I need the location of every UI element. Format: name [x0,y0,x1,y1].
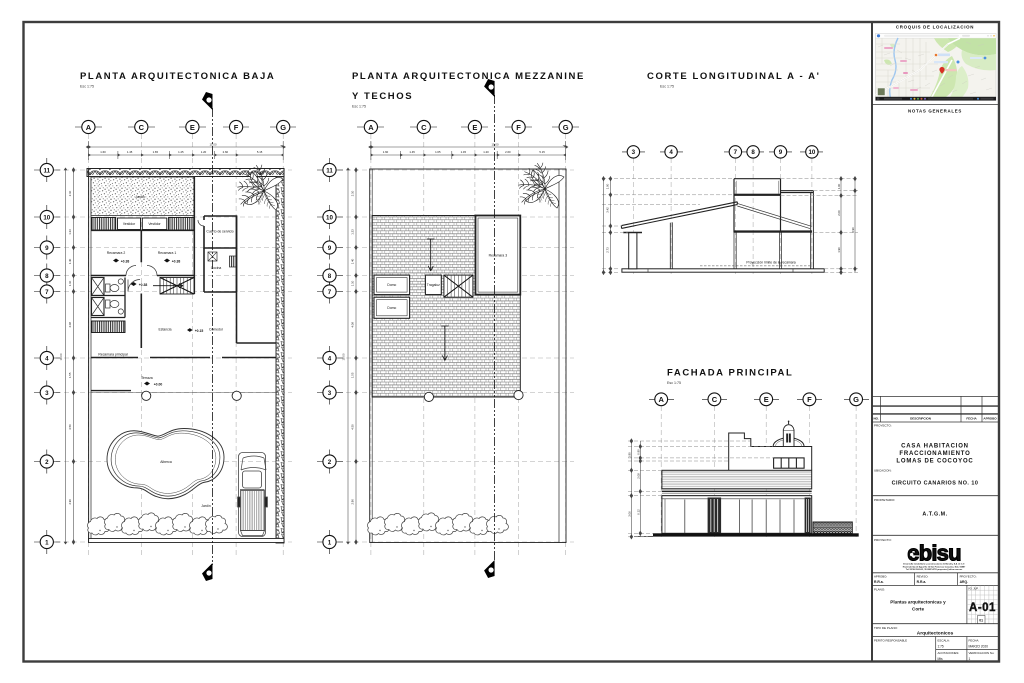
svg-text:Recamara 2: Recamara 2 [107,251,126,255]
svg-text:2.10: 2.10 [351,190,355,196]
svg-text:3.06: 3.06 [627,511,631,517]
svg-text:NO.: NO. [874,417,880,421]
svg-text:4.08: 4.08 [351,322,355,328]
svg-text:8: 8 [751,149,755,156]
svg-text:E: E [190,123,195,132]
svg-text:3.42: 3.42 [606,207,610,213]
svg-text:MARZO 2020: MARZO 2020 [969,644,989,648]
svg-text:1.33: 1.33 [351,229,355,235]
svg-text:+0.38: +0.38 [121,259,130,263]
svg-text:PLANTA ARQUITECTONICA BAJA: PLANTA ARQUITECTONICA BAJA [80,71,275,82]
svg-text:1.45: 1.45 [461,150,467,154]
svg-text:9: 9 [328,245,332,252]
svg-text:1.60: 1.60 [100,150,106,154]
svg-text:2.73: 2.73 [606,247,610,253]
svg-text:R.R.a.: R.R.a. [917,580,927,584]
svg-text:1.55: 1.55 [68,372,72,378]
svg-text:7: 7 [734,149,738,156]
svg-text:Corte: Corte [912,607,924,612]
svg-text:1.55: 1.55 [351,372,355,378]
svg-text:+0.15: +0.15 [195,329,204,333]
svg-text:4: 4 [328,355,332,362]
svg-text:1.45: 1.45 [127,150,133,154]
svg-text:4: 4 [669,149,673,156]
svg-text:Hacienda Ojo de Agua No 12 San: Hacienda Ojo de Agua No 12 San Francisco… [903,565,966,568]
svg-text:CIRCUITO CANARIOS NO. 10: CIRCUITO CANARIOS NO. 10 [892,481,979,487]
svg-text:Recamara 3: Recamara 3 [489,254,508,258]
svg-text:11: 11 [44,167,51,174]
svg-text:Proyección límite de la recáma: Proyección límite de la recámara [746,261,795,265]
svg-text:A: A [86,123,92,132]
svg-text:FECHA:: FECHA: [969,639,980,643]
svg-text:FACHADA PRINCIPAL: FACHADA PRINCIPAL [667,368,793,379]
svg-text:Recamara 1: Recamara 1 [158,251,177,255]
svg-text:1.45: 1.45 [178,150,184,154]
svg-text:1.10: 1.10 [68,280,72,286]
svg-text:Esc 1:75: Esc 1:75 [352,105,366,109]
svg-text:A: A [368,123,374,132]
svg-text:G: G [280,123,286,132]
svg-text:8: 8 [45,273,49,280]
svg-text:1.90: 1.90 [837,247,841,253]
svg-text:DESCRIPCION: DESCRIPCION [910,417,931,421]
svg-text:UBICACION:: UBICACION: [874,469,892,473]
svg-text:15.00: 15.00 [210,142,217,146]
svg-text:+0.38: +0.38 [139,283,148,287]
svg-text:Vestidor: Vestidor [148,222,161,226]
svg-text:Arquitectonicos: Arquitectonicos [917,631,954,637]
svg-text:FECHA: FECHA [966,417,977,421]
svg-text:2.08: 2.08 [636,473,640,479]
svg-text:ebisu: ebisu [907,541,960,566]
svg-text:FRACCIONAMIENTO: FRACCIONAMIENTO [899,451,970,457]
svg-text:1.40: 1.40 [68,258,72,264]
svg-text:1.60: 1.60 [383,150,389,154]
svg-text:Esc 1:75: Esc 1:75 [660,85,674,89]
svg-text:1.45: 1.45 [409,150,415,154]
svg-text:2.10: 2.10 [68,190,72,196]
svg-text:11: 11 [326,167,333,174]
svg-text:G: G [563,123,569,132]
svg-text:Terraza: Terraza [141,376,152,380]
svg-text:10: 10 [808,149,815,156]
svg-text:CORTE LONGITUDINAL A - A': CORTE LONGITUDINAL A - A' [647,71,821,82]
svg-text:1.33: 1.33 [68,229,72,235]
svg-text:A: A [658,395,664,404]
svg-text:Domo: Domo [387,306,396,310]
svg-text:5.15: 5.15 [257,150,263,154]
svg-text:01: 01 [979,619,983,623]
svg-text:PERITO RESPONSABLE: PERITO RESPONSABLE [874,639,907,643]
svg-text:9: 9 [45,245,49,252]
svg-text:CROQUIS DE LOCALIZACION: CROQUIS DE LOCALIZACION [896,25,974,30]
svg-text:Alberca: Alberca [160,460,172,464]
svg-text:REVISO:: REVISO: [917,574,929,578]
svg-text:15.00: 15.00 [492,142,499,146]
svg-text:3: 3 [632,149,636,156]
svg-text:E: E [472,123,477,132]
svg-text:1: 1 [969,657,971,661]
svg-text:Esc 1:75: Esc 1:75 [80,85,94,89]
svg-text:Plantas arquitectonicas y: Plantas arquitectonicas y [890,600,946,605]
svg-text:1.90: 1.90 [627,452,631,458]
svg-text:+0.38: +0.38 [172,259,181,263]
svg-text:3: 3 [45,390,49,397]
svg-text:2.90: 2.90 [351,499,355,505]
svg-text:C: C [712,395,718,404]
svg-text:1.20: 1.20 [201,150,207,154]
svg-text:1.65: 1.65 [435,150,441,154]
svg-text:PROYECTO:: PROYECTO: [874,424,892,428]
svg-text:3: 3 [328,390,332,397]
svg-text:+0.00: +0.00 [154,383,163,387]
svg-text:Domo: Domo [387,283,396,287]
svg-text:Desarrollo inmobiliario y cons: Desarrollo inmobiliario y construcciones… [903,563,965,566]
svg-text:F: F [516,123,521,132]
svg-text:4.50: 4.50 [68,424,72,430]
svg-text:Vestidor: Vestidor [123,222,136,226]
svg-text:ESCALA:: ESCALA: [938,639,950,643]
svg-text:E: E [764,395,769,404]
svg-text:Esc 1:75: Esc 1:75 [667,381,681,385]
svg-text:Jardín: Jardín [201,504,211,508]
svg-text:1.00: 1.00 [837,183,841,189]
svg-text:Comedor: Comedor [209,328,224,332]
svg-text:Recamara principal: Recamara principal [98,353,127,357]
svg-text:APROBO:: APROBO: [874,574,887,578]
svg-text:PROYECTO:: PROYECTO: [874,538,892,542]
svg-text:Jardín: Jardín [135,195,145,199]
svg-text:Mts: Mts [938,657,944,661]
svg-text:2.60: 2.60 [505,150,511,154]
svg-text:0.90: 0.90 [636,449,640,455]
svg-text:1.10: 1.10 [351,280,355,286]
svg-text:18.00: 18.00 [342,353,346,360]
svg-text:VO. JUP.: VO. JUP. [968,586,979,590]
svg-text:PROPIETARIO:: PROPIETARIO: [874,498,895,502]
svg-text:2.60: 2.60 [223,150,229,154]
svg-text:4: 4 [45,355,49,362]
svg-text:C: C [421,123,427,132]
svg-text:R.R.a.: R.R.a. [874,580,884,584]
svg-text:1:75: 1:75 [938,644,944,648]
svg-text:1.65: 1.65 [153,150,159,154]
svg-text:10: 10 [326,214,333,221]
svg-text:1.20: 1.20 [483,150,489,154]
svg-text:1: 1 [328,539,332,546]
svg-text:F: F [807,395,812,404]
svg-text:2.00: 2.00 [837,210,841,216]
svg-text:G: G [853,395,859,404]
svg-text:1: 1 [45,539,49,546]
svg-text:18.00: 18.00 [59,353,63,360]
svg-text:8: 8 [328,273,332,280]
svg-text:TIPO DE PLANO:: TIPO DE PLANO: [874,626,898,630]
svg-text:1.00: 1.00 [606,183,610,189]
svg-text:Tel. 55 58-74-63-01, 55 2687-4: Tel. 55 58-74-63-01, 55 2687-4731 proyec… [906,568,963,571]
svg-text:A-01: A-01 [969,602,996,614]
svg-text:3.90: 3.90 [851,227,855,233]
svg-text:PLANTA ARQUITECTONICA MEZZANIN: PLANTA ARQUITECTONICA MEZZANINE [352,71,585,82]
svg-text:2.90: 2.90 [68,499,72,505]
svg-text:VERIFICACION No:: VERIFICACION No: [969,651,995,655]
svg-text:CASA HABITACION: CASA HABITACION [901,444,969,450]
svg-text:2: 2 [45,459,49,466]
svg-text:Tragaluz: Tragaluz [427,283,440,287]
svg-text:ARQ.: ARQ. [960,580,969,584]
svg-text:Y TECHOS: Y TECHOS [352,91,413,102]
svg-text:A.T.G.M.: A.T.G.M. [922,512,947,518]
svg-text:7: 7 [328,289,332,296]
svg-text:C: C [139,123,145,132]
svg-text:7: 7 [45,289,49,296]
svg-text:F: F [234,123,239,132]
svg-text:4.50: 4.50 [351,424,355,430]
svg-text:ACOTACIONES:: ACOTACIONES: [938,651,960,655]
svg-text:NOTAS GENERALES: NOTAS GENERALES [908,109,962,114]
svg-text:Estancia: Estancia [158,328,171,332]
svg-text:LOMAS DE COCOYOC: LOMAS DE COCOYOC [896,459,973,465]
svg-text:5.15: 5.15 [539,150,545,154]
svg-text:2: 2 [328,459,332,466]
svg-text:PLANO:: PLANO: [874,587,885,591]
svg-text:Cuarto de servicio: Cuarto de servicio [206,230,233,234]
svg-text:0.12: 0.12 [636,509,640,515]
svg-text:APROBO: APROBO [983,417,997,421]
svg-text:10: 10 [43,214,50,221]
svg-text:PROYECTO:: PROYECTO: [960,574,977,578]
svg-text:4.08: 4.08 [68,322,72,328]
svg-text:9: 9 [779,149,783,156]
svg-text:1.40: 1.40 [351,258,355,264]
